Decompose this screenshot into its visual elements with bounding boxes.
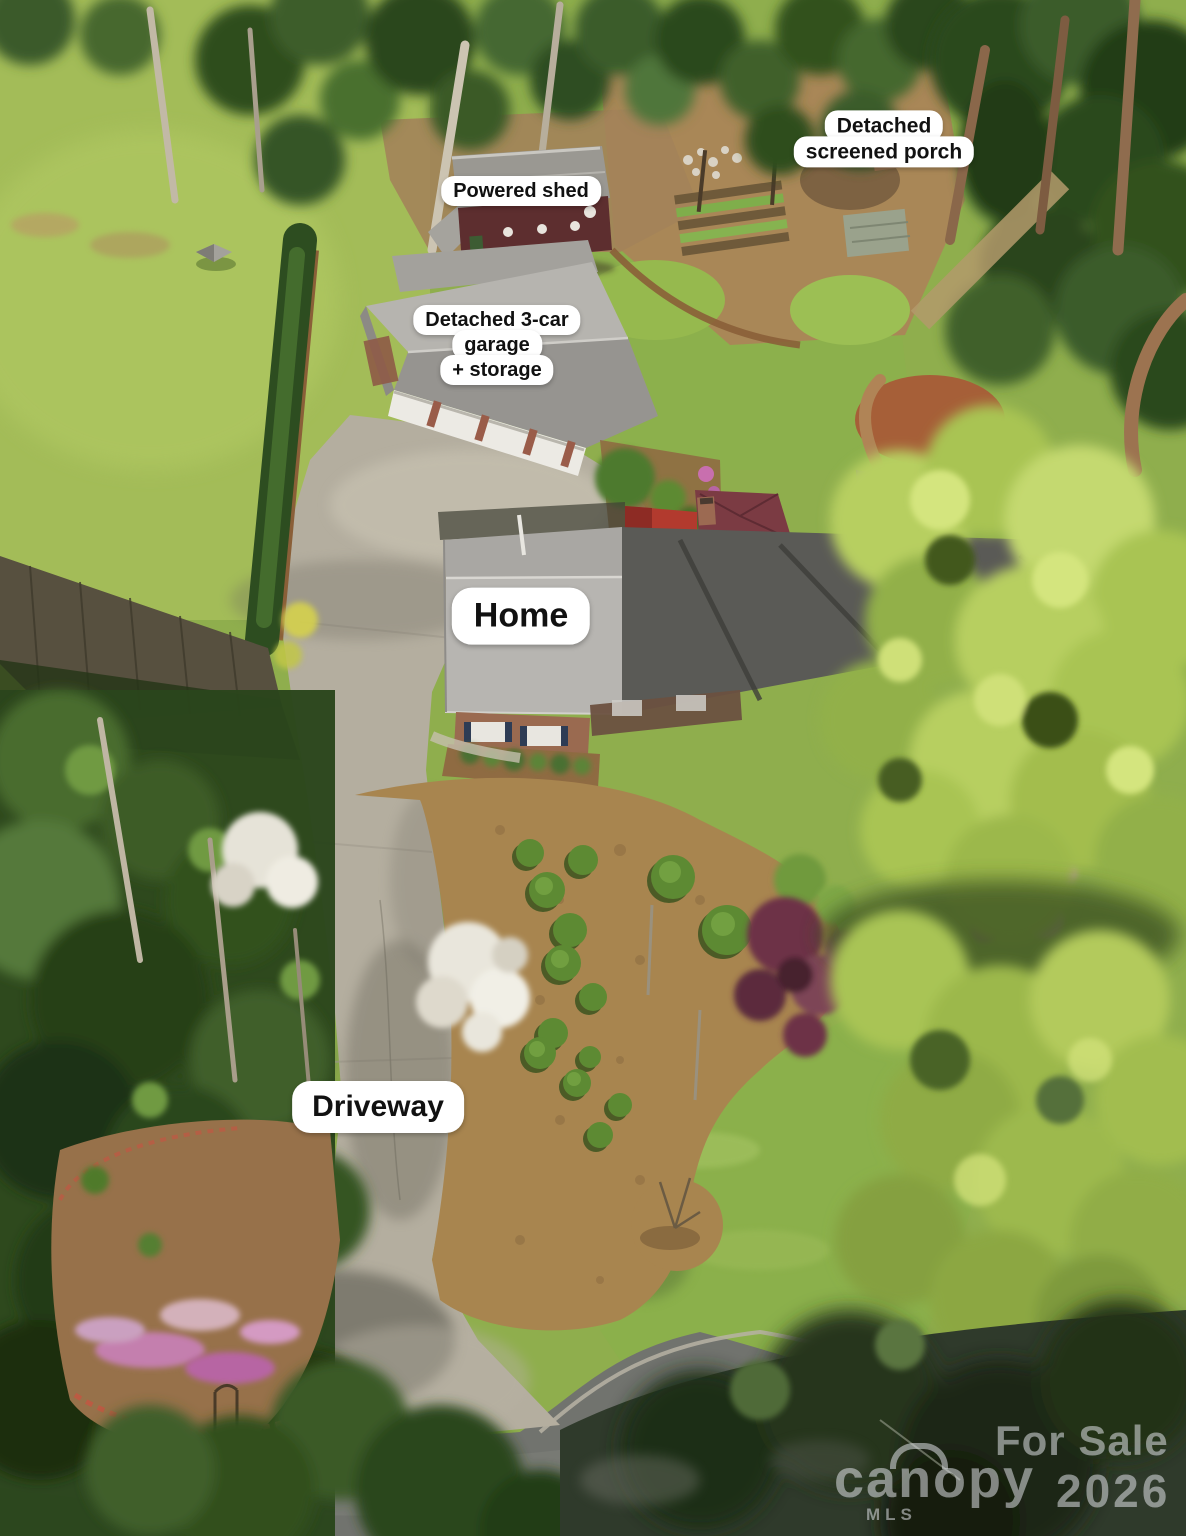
- label-powered-shed-text: Powered shed: [441, 176, 601, 206]
- watermark-year: 2026: [1056, 1468, 1170, 1514]
- label-driveway: Driveway: [292, 1081, 464, 1133]
- label-home-text: Home: [452, 588, 590, 645]
- label-driveway-text: Driveway: [292, 1081, 464, 1133]
- label-garage: Detached 3-car garage + storage: [413, 305, 580, 385]
- label-screened-porch-line2: screened porch: [794, 137, 974, 168]
- watermark-mls: MLS: [866, 1506, 917, 1523]
- label-screened-porch: Detached screened porch: [794, 110, 974, 167]
- label-powered-shed: Powered shed: [441, 176, 601, 206]
- label-home: Home: [452, 588, 590, 645]
- label-garage-line3: + storage: [440, 355, 553, 385]
- aerial-photo: Detached screened porch Powered shed Det…: [0, 0, 1186, 1536]
- stone-patio: [843, 209, 909, 257]
- aerial-photo-art: [0, 0, 1186, 1536]
